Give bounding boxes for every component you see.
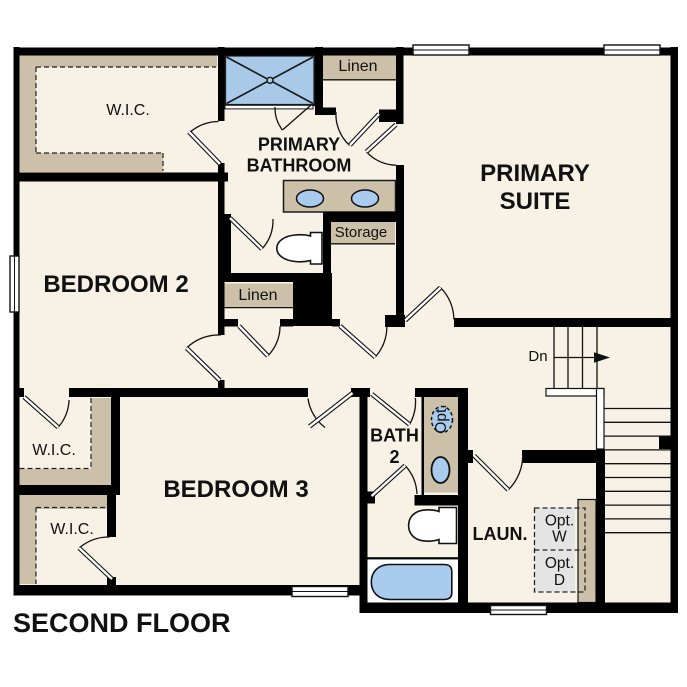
svg-text:Dn: Dn: [528, 348, 547, 365]
svg-text:W.I.C.: W.I.C.: [32, 442, 76, 459]
svg-text:BATH: BATH: [370, 426, 419, 446]
svg-text:PRIMARY: PRIMARY: [480, 160, 590, 187]
svg-text:Linen: Linen: [238, 287, 277, 304]
svg-text:BEDROOM 3: BEDROOM 3: [163, 476, 308, 503]
svg-text:LAUN.: LAUN.: [473, 524, 528, 544]
svg-text:SECOND FLOOR: SECOND FLOOR: [13, 608, 231, 638]
svg-text:Linen: Linen: [338, 58, 377, 75]
svg-text:Opt.: Opt.: [545, 513, 574, 530]
svg-text:W.I.C.: W.I.C.: [50, 521, 94, 538]
svg-text:SUITE: SUITE: [500, 188, 571, 215]
svg-text:W: W: [552, 529, 567, 546]
svg-text:PRIMARY: PRIMARY: [258, 135, 340, 155]
svg-text:Opt.: Opt.: [433, 404, 450, 433]
svg-text:Opt.: Opt.: [545, 555, 574, 572]
svg-text:Storage: Storage: [335, 224, 388, 241]
svg-text:2: 2: [389, 447, 399, 467]
svg-text:BEDROOM 2: BEDROOM 2: [43, 271, 188, 298]
svg-text:W.I.C.: W.I.C.: [106, 102, 150, 119]
svg-text:D: D: [554, 572, 565, 589]
svg-text:BATHROOM: BATHROOM: [247, 156, 352, 176]
